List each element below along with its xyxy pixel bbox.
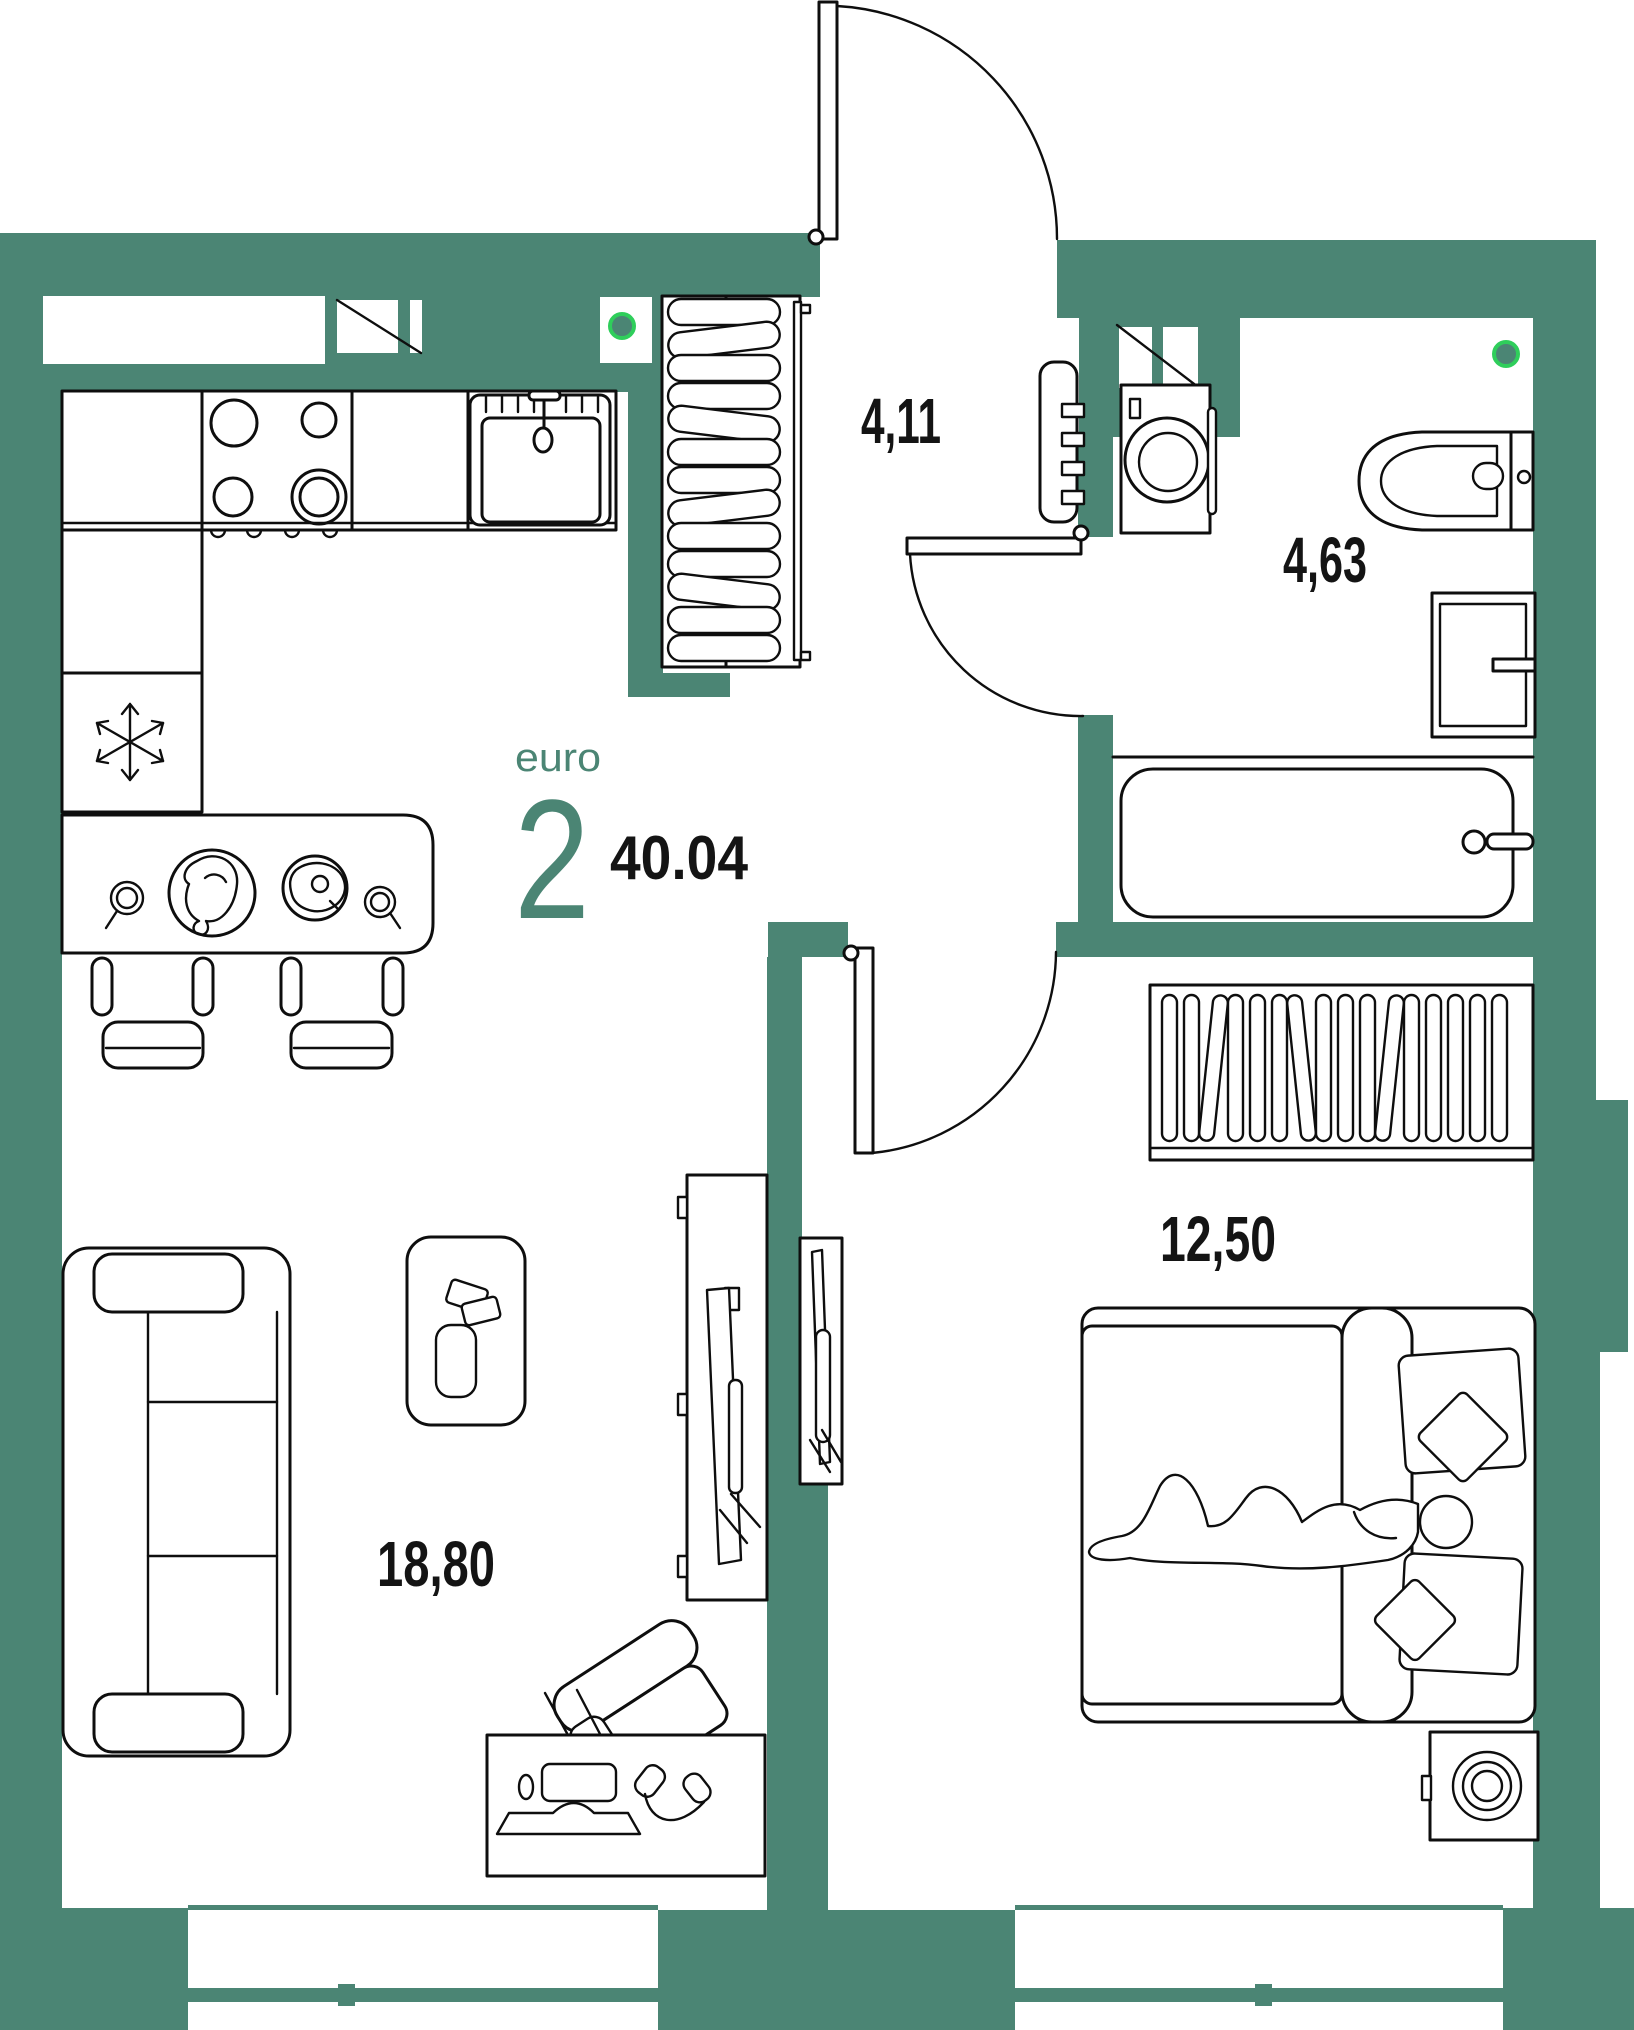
bed	[1082, 1308, 1535, 1722]
wall-hall-bath-upper	[1078, 437, 1113, 537]
window-left-inner-edge	[188, 1905, 658, 1910]
vent-duct-opening-a	[337, 300, 398, 353]
wall-hall-bath-lower	[1078, 715, 1113, 922]
bath-vent-opening-b	[1163, 327, 1198, 388]
sofa-armrest-bottom	[94, 1694, 243, 1752]
closet-door-edge	[794, 302, 801, 660]
wall-kitchen-stub	[628, 673, 730, 697]
bathroom-green-dot-marker	[1494, 342, 1518, 366]
plan-total-area: 40.04	[610, 824, 748, 893]
entry-door-leaf	[819, 2, 837, 239]
window-left-glass	[188, 1988, 658, 2002]
wall-living-bedroom-upper	[767, 957, 802, 1483]
floor-plan-canvas: 4,11 4,63 12,50 18,80 euro 2 40.04	[0, 0, 1634, 2030]
bedroom-door-arc	[872, 952, 1056, 1153]
vent-duct-opening-b	[410, 300, 422, 353]
bed-duvet	[1082, 1326, 1342, 1704]
window-right-mullion	[1255, 1984, 1272, 2006]
wall-living-bedroom-lower	[767, 1483, 828, 1910]
floorplan-page: 4,11 4,63 12,50 18,80 euro 2 40.04	[0, 0, 1634, 2030]
sofa	[63, 1248, 290, 1756]
kitchen-sink-icon	[470, 391, 610, 525]
toilet-icon	[1359, 432, 1533, 530]
entry-door-arc	[837, 6, 1057, 239]
wall-corner-bottom-right	[1503, 1908, 1634, 2030]
floor-device-icon	[1422, 1732, 1538, 1840]
bathtub-icon	[1113, 757, 1533, 917]
hallway	[662, 296, 1084, 667]
kitchen	[62, 391, 616, 1068]
hall-radiator-icon	[1040, 362, 1084, 522]
living-area-label: 18,80	[377, 1528, 495, 1600]
bedroom-door-leaf	[855, 948, 873, 1153]
sofa-armrest-top	[94, 1254, 243, 1312]
closet-tick-top	[801, 305, 810, 313]
bathroom	[1113, 342, 1535, 917]
mouse-icon	[519, 1775, 533, 1799]
entry-door-hinge	[809, 230, 823, 244]
bedroom	[800, 985, 1538, 1840]
bar-chair-2	[281, 958, 403, 1068]
tray	[436, 1325, 476, 1397]
bath-sink-icon	[1432, 593, 1535, 737]
plan-rooms-count: 2	[514, 765, 590, 955]
closet-tick-bottom	[801, 652, 810, 660]
wall-top-left-outer	[0, 233, 820, 297]
bedroom-area-label: 12,50	[1160, 1203, 1276, 1275]
washing-machine-icon	[1121, 385, 1216, 533]
wall-top-right	[1057, 240, 1596, 318]
wall-left	[0, 233, 62, 2030]
kitchen-tall-cabinet	[62, 530, 202, 812]
wall-bottom-pier	[658, 1910, 1015, 2030]
living-room	[63, 1175, 767, 1876]
bathroom-door-hinge	[1074, 526, 1088, 540]
kitchen-green-dot-marker	[610, 314, 634, 338]
bathroom-area-label: 4,63	[1283, 524, 1367, 596]
wall-right-upper	[1533, 318, 1596, 1100]
window-left-mullion	[338, 1984, 355, 2006]
wall-bath-bedroom	[1056, 922, 1535, 957]
wall-right-lower	[1533, 1352, 1600, 1910]
doors	[809, 2, 1088, 1153]
kitchen-window-opening	[43, 296, 325, 364]
bathroom-door-arc	[910, 554, 1083, 716]
bath-vent-opening-a	[1119, 327, 1152, 388]
coffee-table	[407, 1237, 525, 1425]
wall-kitchen-hall	[628, 362, 663, 673]
keyboard-icon	[542, 1764, 616, 1801]
bedroom-wardrobe-icon	[1150, 985, 1533, 1160]
bedroom-tv-unit	[800, 1238, 842, 1484]
bedroom-door-hinge	[844, 946, 858, 960]
bathroom-door-leaf	[907, 538, 1081, 554]
hallway-area-label: 4,11	[861, 385, 941, 457]
living-tv-unit	[678, 1175, 767, 1600]
plan-title: euro 2 40.04	[514, 736, 748, 955]
wall-right-step	[1533, 1100, 1628, 1352]
desk	[487, 1735, 765, 1876]
bar-chair-1	[92, 958, 213, 1068]
wall-corner-bottom-left	[0, 1908, 188, 2030]
wall-bedroom-door-left	[768, 922, 848, 957]
window-right-inner-edge	[1015, 1905, 1503, 1910]
